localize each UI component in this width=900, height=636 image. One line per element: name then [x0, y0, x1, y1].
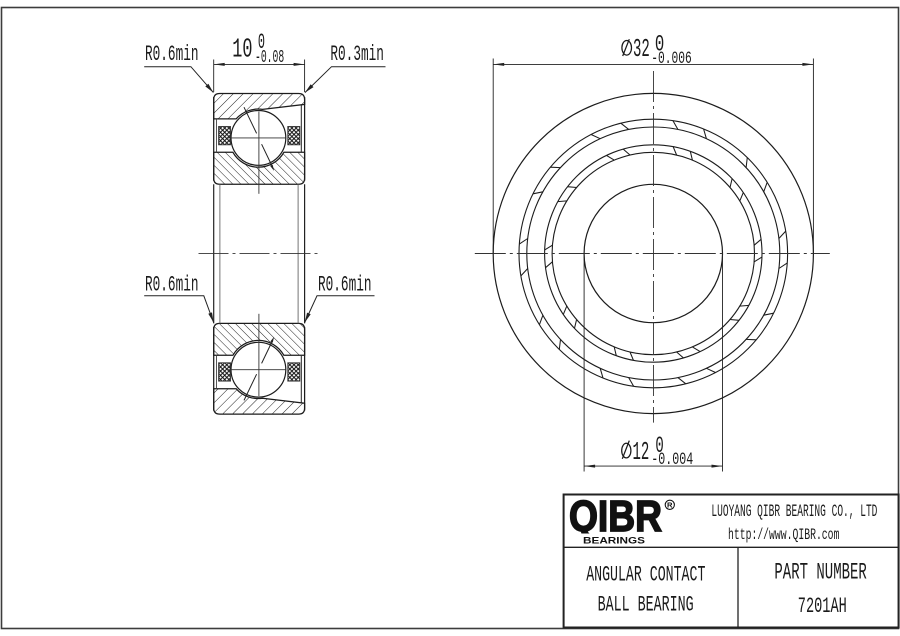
svg-text:PART NUMBER: PART NUMBER: [774, 560, 867, 586]
svg-text:BALL BEARING: BALL BEARING: [598, 591, 694, 617]
svg-text:R0.6min: R0.6min: [145, 41, 199, 67]
svg-text:-0.004: -0.004: [651, 450, 693, 470]
svg-text:10: 10: [232, 36, 252, 66]
svg-text:-0.006: -0.006: [651, 49, 692, 69]
svg-text:BEARINGS: BEARINGS: [583, 535, 646, 546]
svg-text:R0.6min: R0.6min: [318, 272, 372, 298]
svg-text:R0.6min: R0.6min: [145, 272, 199, 298]
svg-text:12: 12: [633, 437, 650, 467]
svg-text:ANGULAR CONTACT: ANGULAR CONTACT: [586, 562, 705, 588]
svg-text:http://www.QIBR.com: http://www.QIBR.com: [728, 526, 839, 544]
svg-text:32: 32: [633, 34, 650, 64]
svg-text:R0.3min: R0.3min: [330, 41, 384, 67]
svg-text:-0.08: -0.08: [255, 48, 284, 68]
svg-text:R: R: [667, 501, 673, 510]
svg-text:LUOYANG QIBR BEARING CO., LTD: LUOYANG QIBR BEARING CO., LTD: [711, 503, 877, 522]
svg-text:QIBR: QIBR: [569, 492, 662, 541]
svg-text:7201AH: 7201AH: [798, 594, 847, 619]
